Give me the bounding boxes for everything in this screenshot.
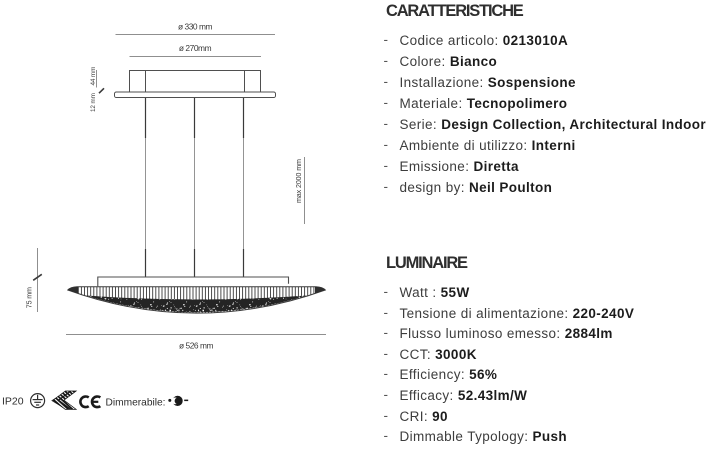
- svg-text:ø 526 mm: ø 526 mm: [179, 341, 214, 351]
- svg-text:IP20: IP20: [2, 396, 24, 408]
- svg-text:75 mm: 75 mm: [26, 287, 34, 308]
- svg-text:ø 330 mm: ø 330 mm: [178, 21, 213, 31]
- svg-text:Dimmerabile:: Dimmerabile:: [106, 398, 166, 409]
- svg-text:ø 270mm: ø 270mm: [179, 43, 212, 53]
- svg-text:44 mm: 44 mm: [90, 67, 97, 86]
- svg-text:max 2000 mm: max 2000 mm: [295, 159, 303, 203]
- svg-text:12 mm: 12 mm: [90, 93, 97, 112]
